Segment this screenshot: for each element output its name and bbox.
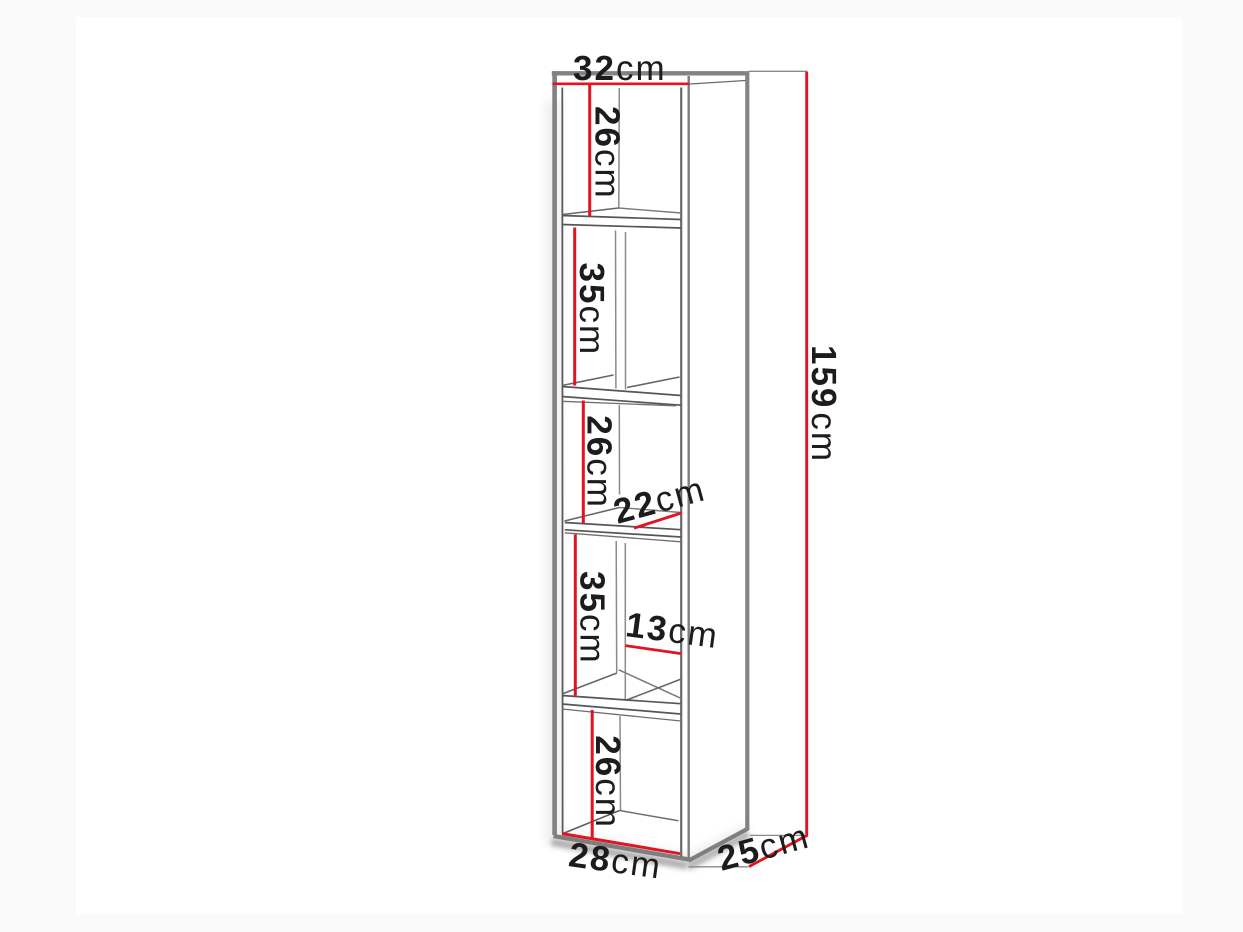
svg-text:35cm: 35cm	[572, 263, 611, 357]
svg-text:26cm: 26cm	[588, 735, 627, 829]
svg-text:35cm: 35cm	[572, 571, 611, 665]
svg-text:32cm: 32cm	[573, 49, 667, 88]
svg-text:159cm: 159cm	[804, 345, 843, 463]
svg-text:26cm: 26cm	[587, 106, 626, 200]
